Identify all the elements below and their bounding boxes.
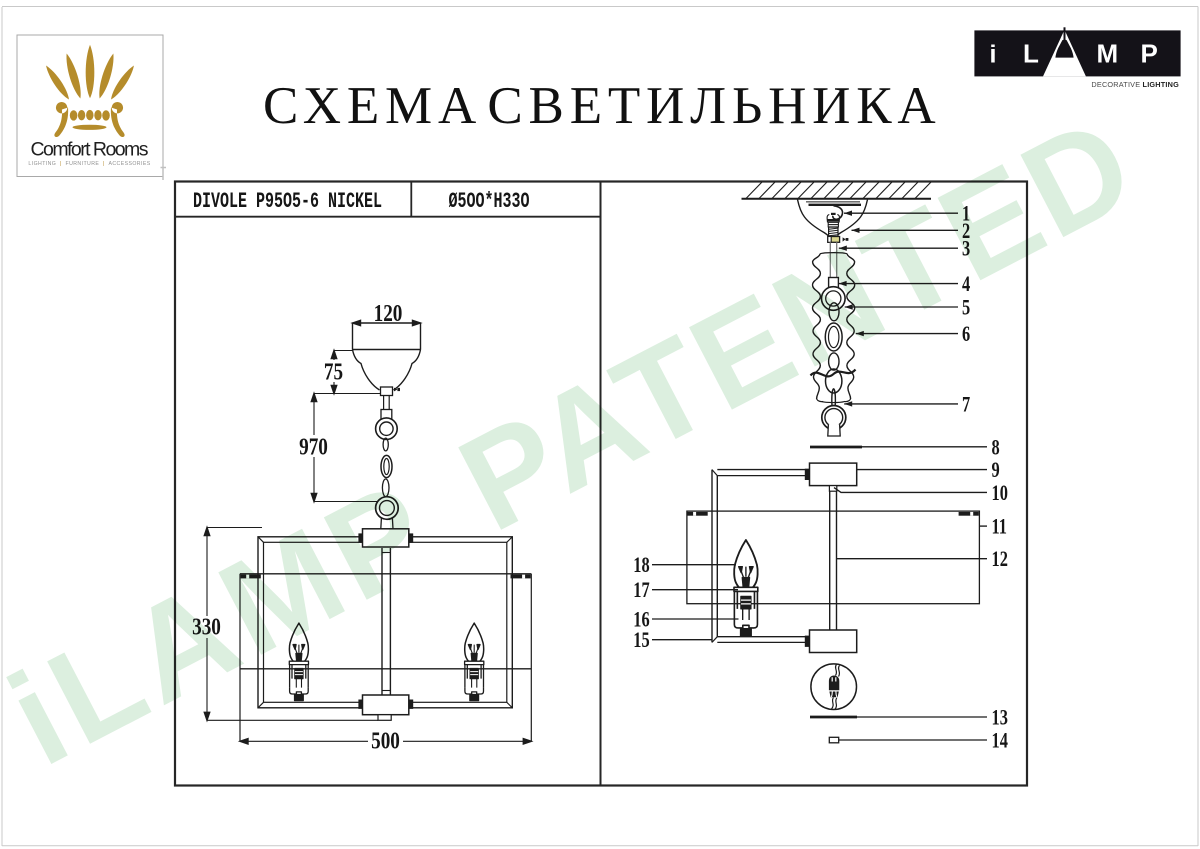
svg-text:13: 13 xyxy=(992,705,1008,730)
svg-text:СХЕМАСВЕТИЛЬНИКА: СХЕМАСВЕТИЛЬНИКА xyxy=(263,77,941,135)
svg-text:970: 970 xyxy=(299,433,328,460)
svg-text:M: M xyxy=(1097,39,1119,69)
svg-text:17: 17 xyxy=(633,578,649,603)
svg-text:L: L xyxy=(1023,39,1039,69)
svg-text:11: 11 xyxy=(992,514,1007,539)
svg-text:15: 15 xyxy=(633,628,649,653)
svg-text:7: 7 xyxy=(962,392,970,417)
svg-text:12: 12 xyxy=(992,547,1008,572)
svg-text:Ø5OO*H33O: Ø5OO*H33O xyxy=(449,188,530,214)
svg-text:P: P xyxy=(1141,39,1158,69)
svg-text:18: 18 xyxy=(633,553,649,578)
svg-text:i: i xyxy=(990,41,997,69)
svg-text:120: 120 xyxy=(374,300,403,327)
svg-text:14: 14 xyxy=(992,728,1008,753)
svg-text:DECORATIVE LIGHTING: DECORATIVE LIGHTING xyxy=(1091,80,1179,89)
svg-text:LIGHTING | FURNITURE | ACC: LIGHTING | FURNITURE | ACCESSORIES xyxy=(28,161,150,167)
svg-text:500: 500 xyxy=(371,727,400,754)
svg-text:10: 10 xyxy=(992,480,1008,505)
svg-text:9: 9 xyxy=(992,458,1000,483)
svg-text:6: 6 xyxy=(962,322,970,347)
svg-text:8: 8 xyxy=(992,435,1000,460)
svg-text:75: 75 xyxy=(324,358,343,385)
svg-text:DIVOLE P95O5-6 NICKEL: DIVOLE P95O5-6 NICKEL xyxy=(193,188,382,214)
svg-text:Comfort Rooms: Comfort Rooms xyxy=(31,139,149,161)
